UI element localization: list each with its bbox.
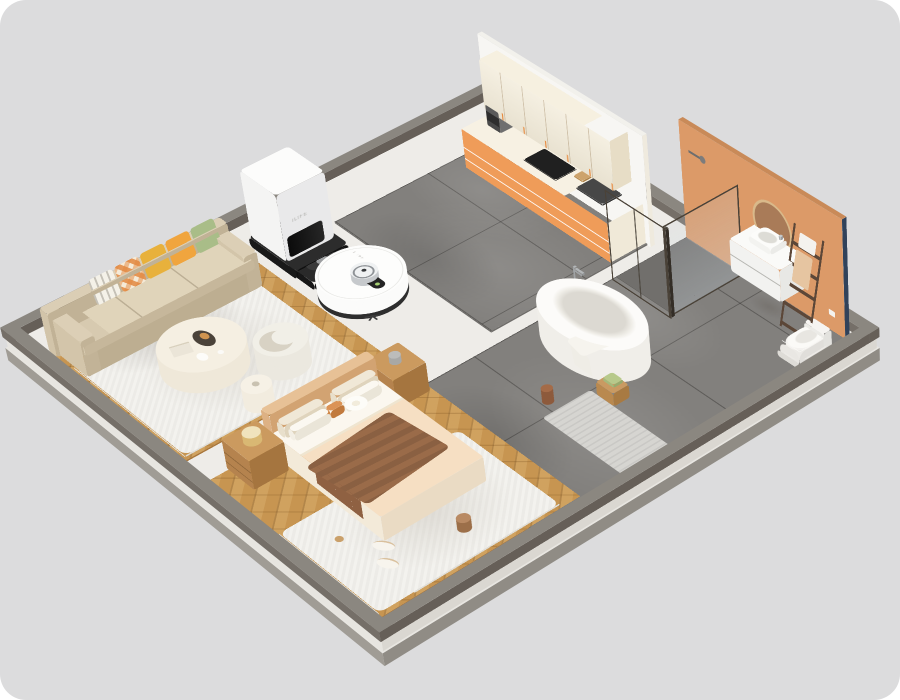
floor-platform: ILIFE ILIFE — [3, 90, 880, 642]
isometric-scene: ILIFE ILIFE — [0, 0, 900, 700]
wall-outlet — [829, 308, 835, 317]
towel-beige — [792, 249, 813, 291]
product-render-card: ILIFE ILIFE — [0, 0, 900, 700]
shower-head-icon — [699, 154, 705, 165]
